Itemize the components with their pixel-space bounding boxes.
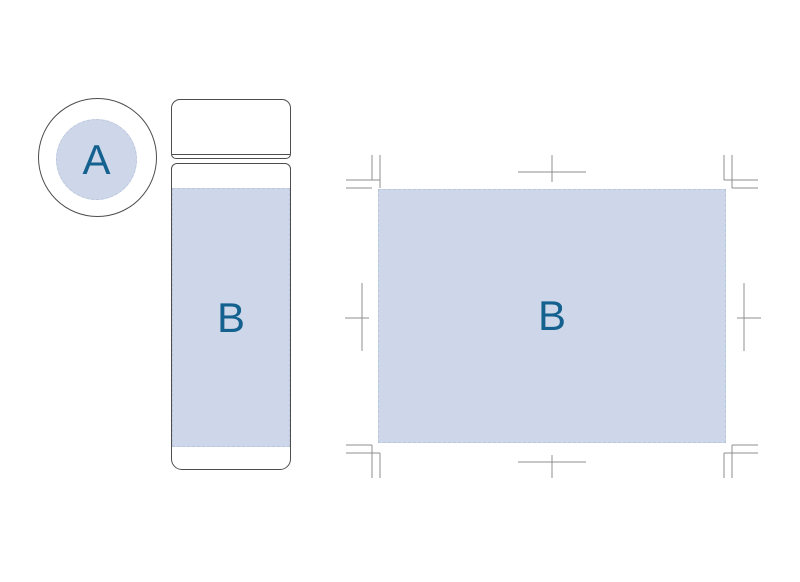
print-area-a-label: A	[82, 139, 110, 181]
crop-mark-top-right-icon	[724, 155, 758, 188]
print-area-b-side-label: B	[217, 297, 245, 339]
crop-mark-right-center-icon	[737, 283, 761, 351]
crop-mark-bottom-left-icon	[346, 445, 380, 478]
print-area-b-unwrapped: B	[378, 189, 726, 443]
crop-mark-top-left-icon	[346, 155, 380, 188]
crop-mark-bottom-right-icon	[724, 445, 758, 478]
print-template-diagram: A B B	[0, 0, 800, 582]
print-area-a: A	[56, 119, 137, 200]
crop-mark-bottom-center-icon	[518, 455, 586, 478]
print-area-b-side: B	[172, 188, 290, 447]
bottle-cap	[171, 99, 291, 159]
print-area-b-unwrapped-label: B	[538, 295, 566, 337]
crop-mark-left-center-icon	[345, 283, 369, 351]
crop-mark-top-center-icon	[518, 155, 586, 182]
bottle-cap-seam-line	[172, 154, 290, 155]
